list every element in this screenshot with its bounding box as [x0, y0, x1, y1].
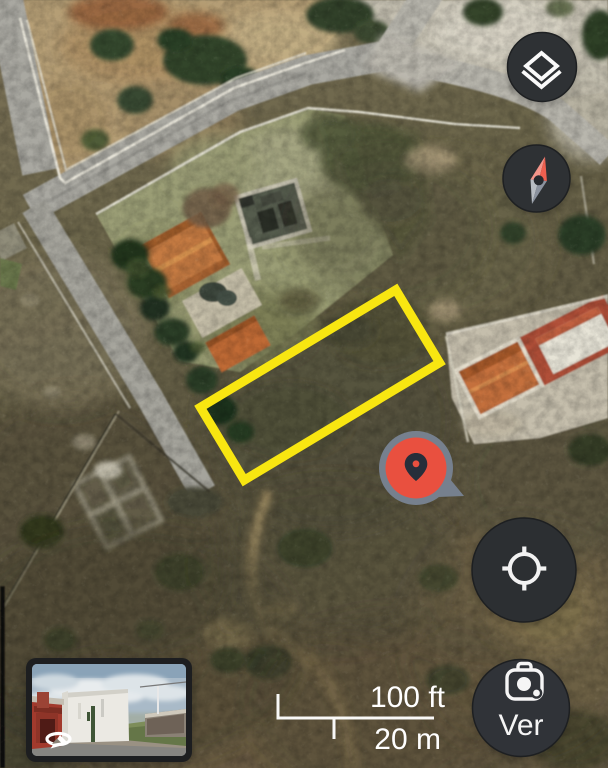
svg-text:Ver: Ver — [498, 709, 543, 742]
svg-text:100 ft: 100 ft — [370, 681, 446, 714]
svg-text:20 m: 20 m — [374, 723, 441, 756]
